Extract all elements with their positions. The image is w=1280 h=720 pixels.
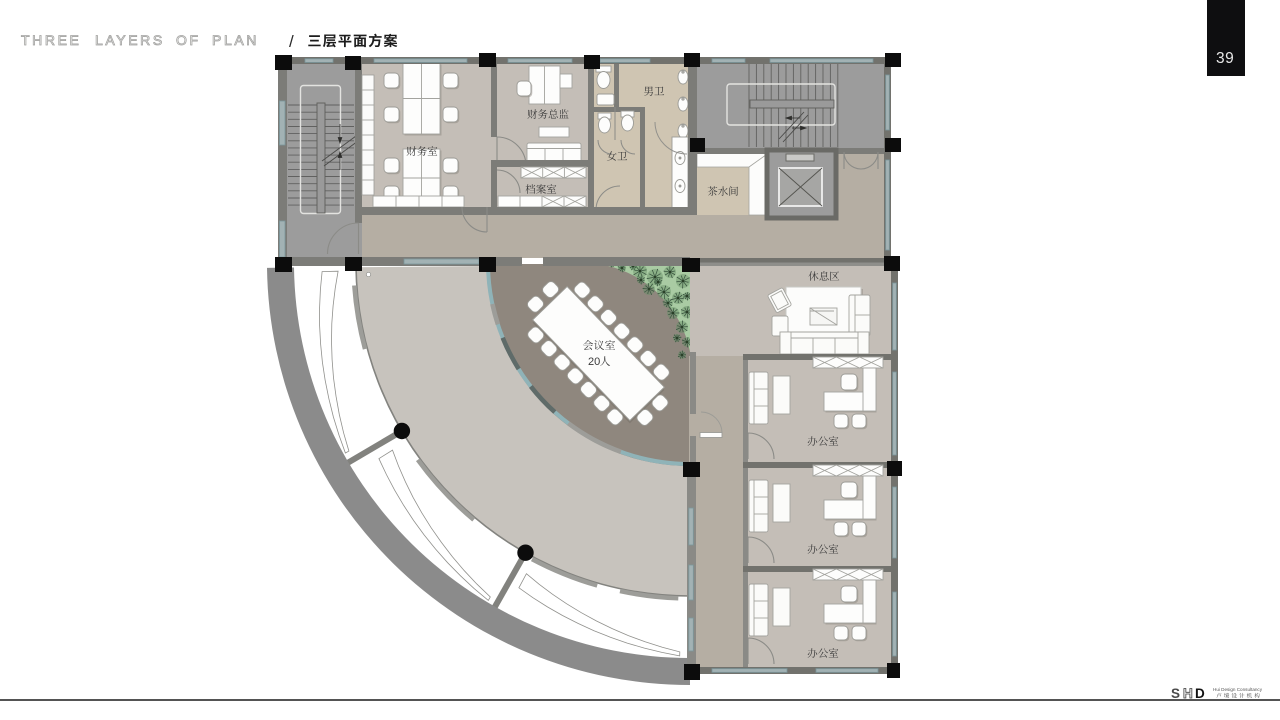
svg-text:OF: OF: [176, 32, 201, 48]
svg-text:PLAN: PLAN: [212, 32, 259, 48]
svg-text:20: 20: [588, 356, 600, 368]
svg-text:D: D: [1195, 686, 1205, 701]
svg-text:H: H: [1183, 686, 1194, 701]
svg-text:THREE: THREE: [21, 32, 81, 48]
svg-text:/: /: [289, 32, 294, 51]
svg-text:39: 39: [1216, 50, 1234, 67]
svg-text:LAYERS: LAYERS: [95, 32, 165, 48]
svg-text:S: S: [1171, 686, 1182, 701]
svg-text:Hui Design Consultancy: Hui Design Consultancy: [1213, 687, 1263, 692]
